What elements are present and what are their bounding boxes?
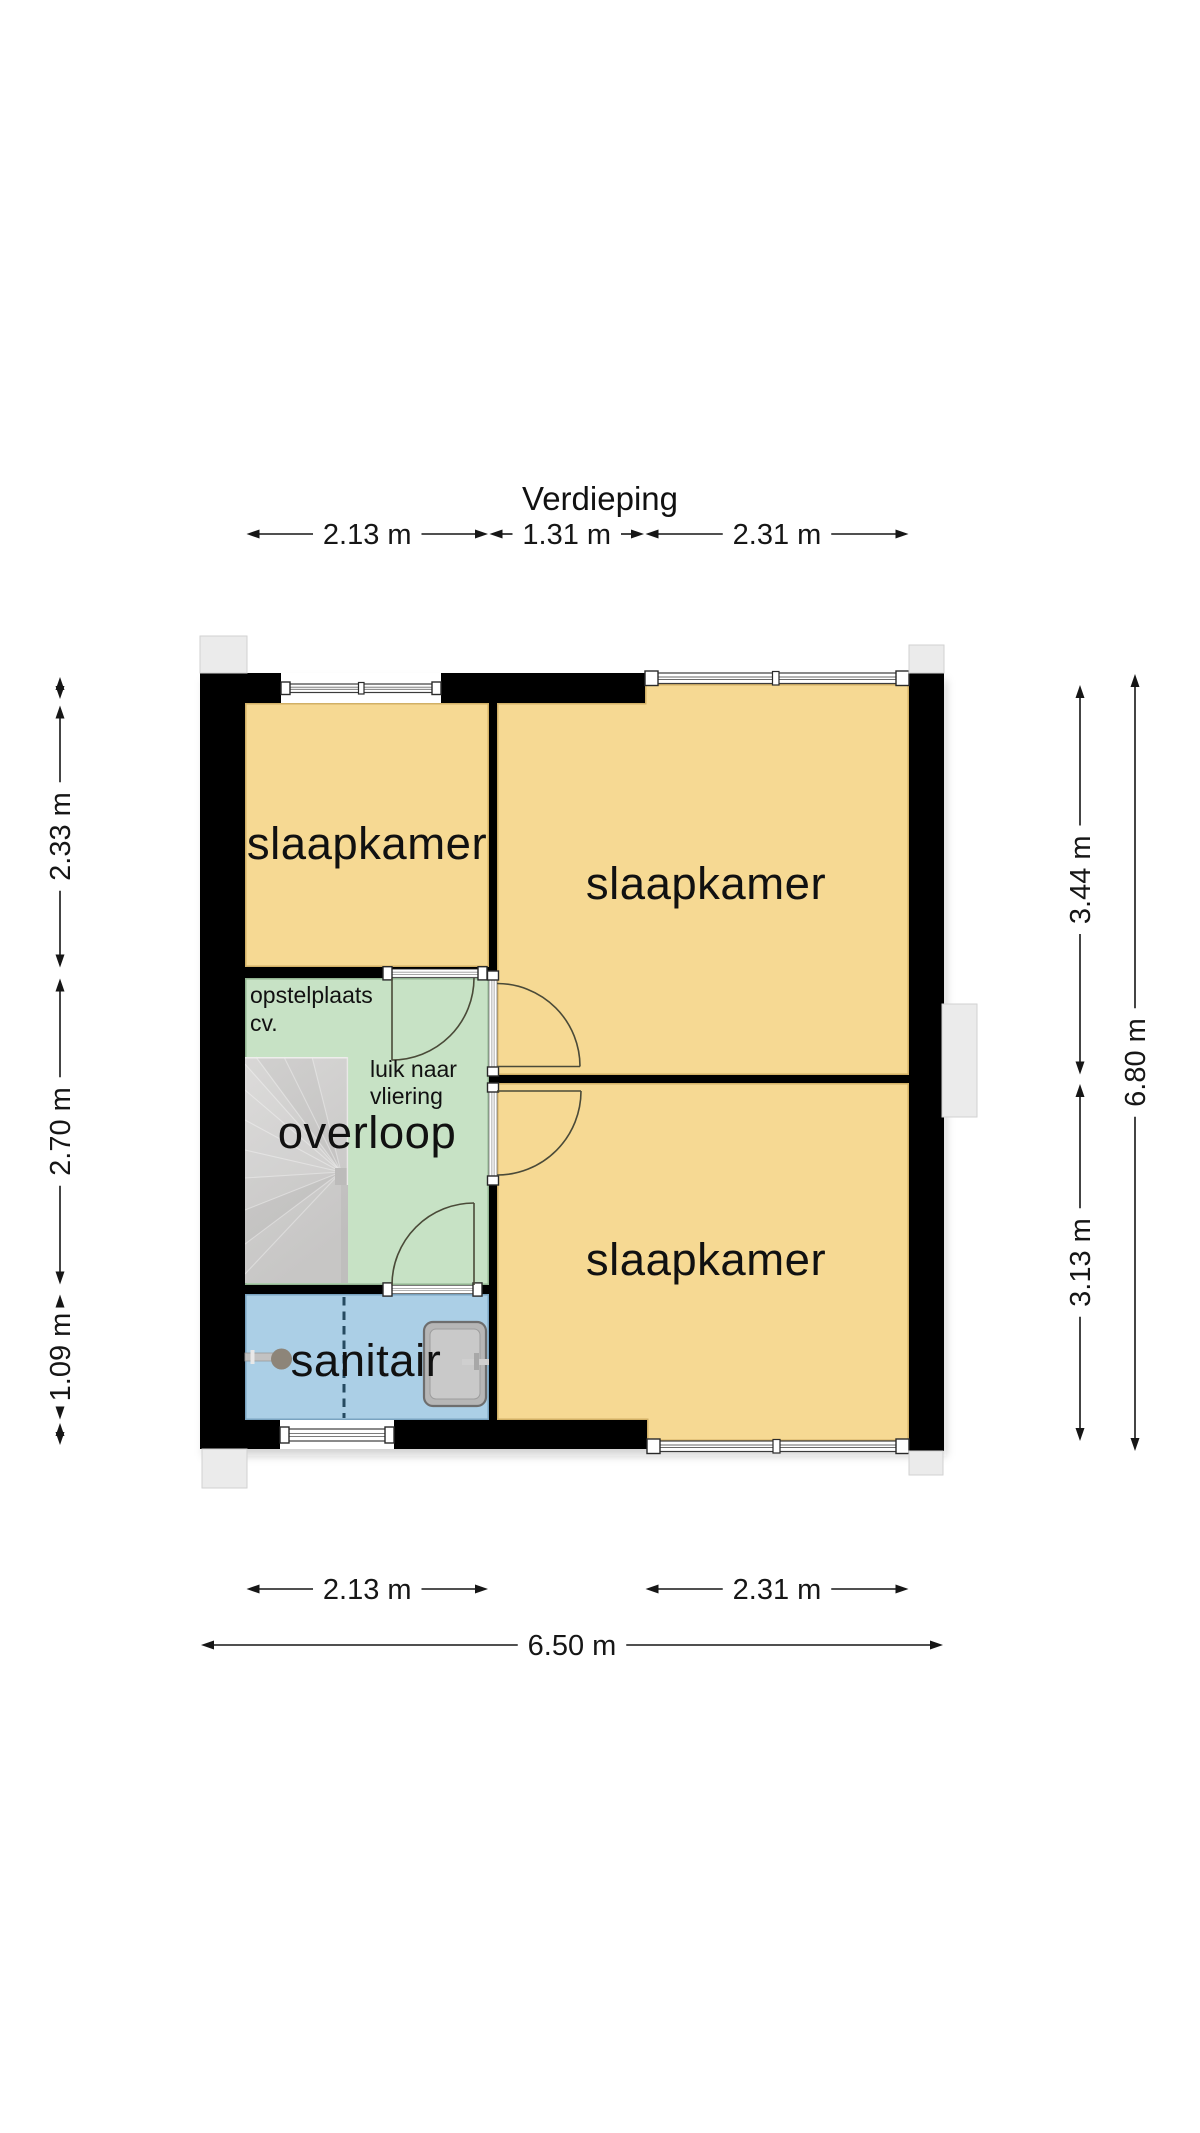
svg-text:1.31 m: 1.31 m xyxy=(522,519,611,551)
svg-text:2.70 m: 2.70 m xyxy=(45,1087,77,1176)
svg-text:sanitair: sanitair xyxy=(291,1335,442,1386)
svg-text:slaapkamer: slaapkamer xyxy=(586,858,826,909)
svg-text:Verdieping: Verdieping xyxy=(522,480,678,517)
svg-text:3.44 m: 3.44 m xyxy=(1065,835,1097,924)
svg-text:6.80 m: 6.80 m xyxy=(1120,1018,1152,1107)
svg-text:luik naar: luik naar xyxy=(370,1056,457,1082)
svg-text:opstelplaats: opstelplaats xyxy=(250,982,373,1008)
svg-text:6.50 m: 6.50 m xyxy=(528,1630,617,1662)
svg-text:2.33 m: 2.33 m xyxy=(45,792,77,881)
svg-text:2.13 m: 2.13 m xyxy=(323,519,412,551)
svg-text:overloop: overloop xyxy=(278,1107,457,1158)
svg-text:2.31 m: 2.31 m xyxy=(733,519,822,551)
svg-text:cv.: cv. xyxy=(250,1010,278,1036)
svg-text:vliering: vliering xyxy=(370,1083,443,1109)
svg-text:1.09 m: 1.09 m xyxy=(45,1313,77,1402)
svg-text:2.31 m: 2.31 m xyxy=(733,1574,822,1606)
svg-text:2.13 m: 2.13 m xyxy=(323,1574,412,1606)
svg-text:slaapkamer: slaapkamer xyxy=(586,1234,826,1285)
svg-text:3.13 m: 3.13 m xyxy=(1065,1218,1097,1307)
svg-text:slaapkamer: slaapkamer xyxy=(247,818,487,869)
